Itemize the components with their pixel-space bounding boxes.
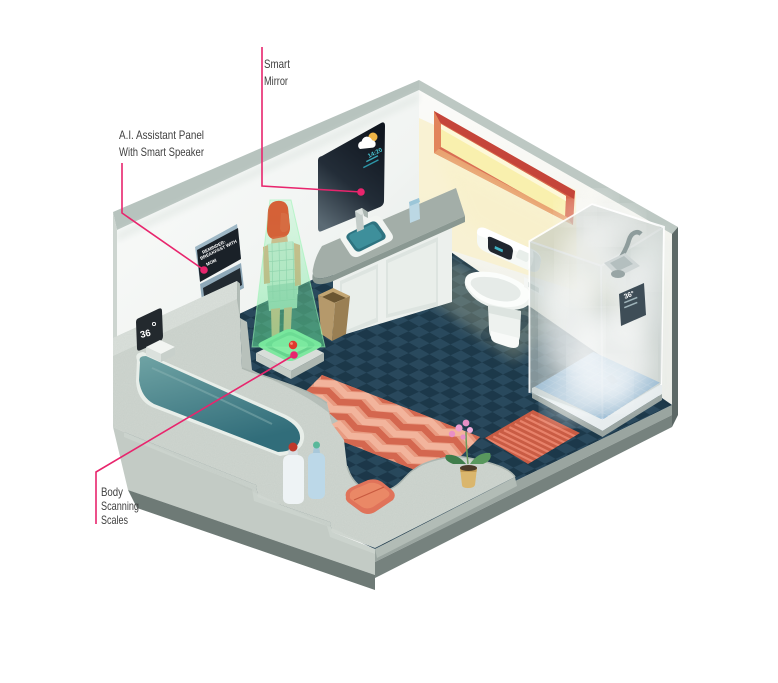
svg-text:Smart: Smart [264,57,291,71]
svg-text:With Smart Speaker: With Smart Speaker [119,145,204,159]
svg-text:Body: Body [101,485,123,499]
svg-text:Scanning: Scanning [101,499,139,513]
svg-text:Mirror: Mirror [264,74,288,88]
svg-text:Scales: Scales [101,513,128,527]
svg-text:A.I. Assistant Panel: A.I. Assistant Panel [119,128,204,142]
